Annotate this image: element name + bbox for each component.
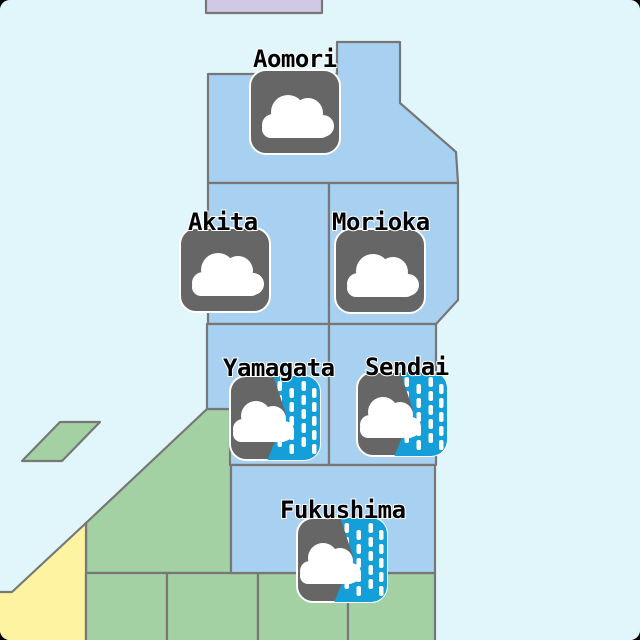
region-hokkaido-tip bbox=[206, 0, 322, 13]
city-yamagata bbox=[230, 375, 321, 461]
city-sendai bbox=[357, 371, 448, 457]
cloud-rain-icon[interactable] bbox=[230, 375, 321, 461]
city-label-aomori: Aomori bbox=[253, 45, 337, 73]
weather-map-screen: AomoriAkitaMoriokaYamagataSendaiFukushim… bbox=[0, 0, 640, 640]
city-label-morioka: Morioka bbox=[332, 208, 430, 236]
city-label-sendai: Sendai bbox=[365, 353, 449, 381]
cloud-rain-icon[interactable] bbox=[357, 371, 448, 457]
city-fukushima bbox=[297, 517, 388, 603]
city-label-akita: Akita bbox=[188, 208, 258, 236]
cloud-icon[interactable] bbox=[180, 228, 270, 312]
region-kanto-west bbox=[86, 573, 167, 640]
cloud-icon[interactable] bbox=[250, 70, 340, 154]
city-morioka bbox=[335, 229, 425, 313]
city-akita bbox=[180, 228, 270, 312]
cloud-rain-icon[interactable] bbox=[297, 517, 388, 603]
city-label-yamagata: Yamagata bbox=[223, 354, 335, 382]
cloud-icon[interactable] bbox=[335, 229, 425, 313]
city-aomori bbox=[250, 70, 340, 154]
city-label-fukushima: Fukushima bbox=[280, 496, 406, 524]
region-kanto-mid-west bbox=[167, 573, 258, 640]
tohoku-weather-map: AomoriAkitaMoriokaYamagataSendaiFukushim… bbox=[0, 0, 640, 640]
